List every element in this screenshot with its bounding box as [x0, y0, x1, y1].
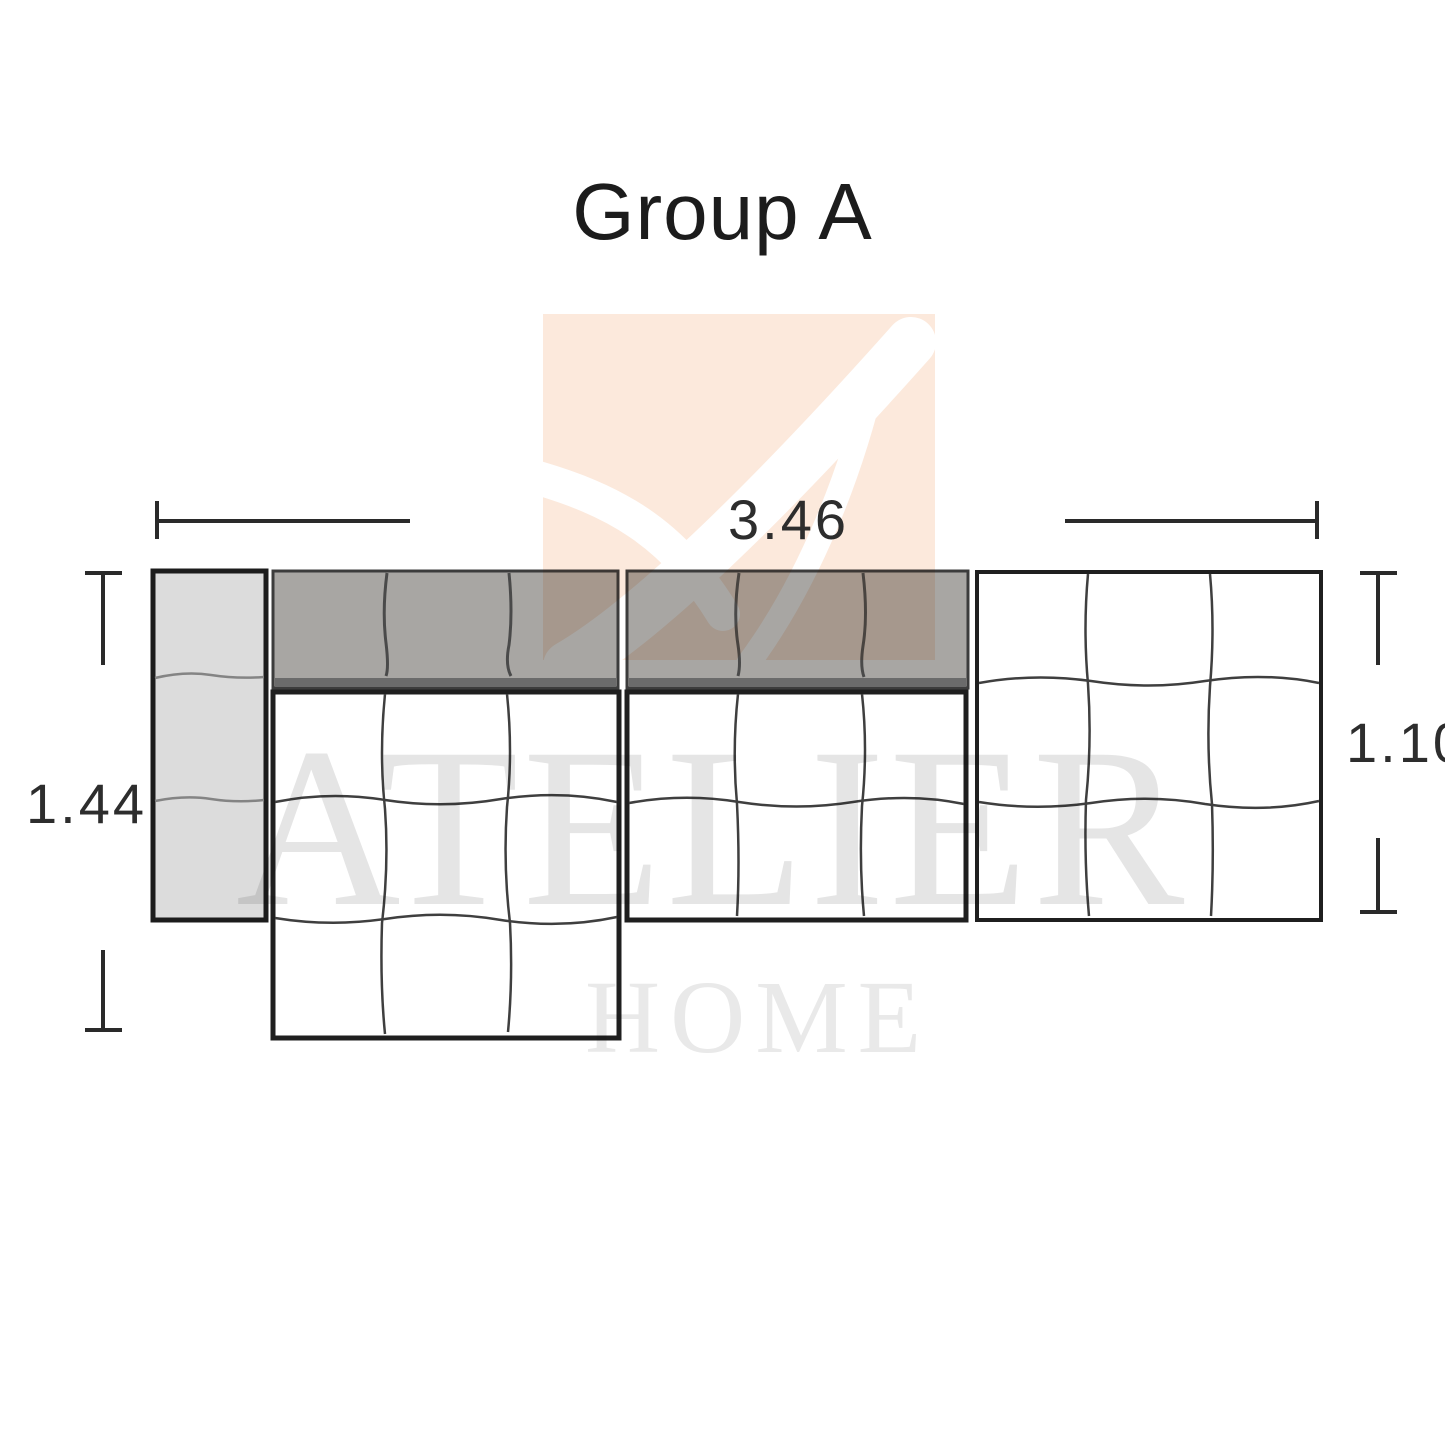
watermark-brand-name: ATELIER — [236, 714, 1188, 942]
dimension-label-width: 3.46 — [728, 492, 849, 548]
dimension-label-left-depth: 1.44 — [26, 776, 147, 832]
brand-logo-watermark — [543, 314, 935, 660]
diagram-canvas: Group A — [0, 0, 1445, 1445]
logo-swoosh-icon — [543, 314, 935, 660]
dimension-label-right-depth: 1.10 — [1346, 715, 1445, 771]
watermark-brand-sub: HOME — [585, 966, 931, 1070]
